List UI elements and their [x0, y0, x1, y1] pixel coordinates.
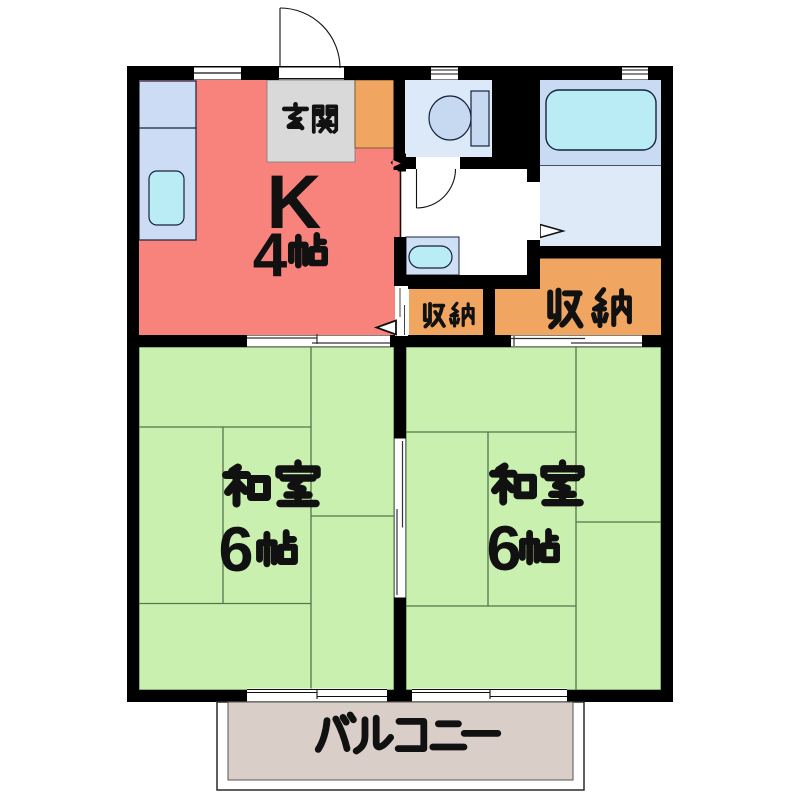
svg-text:4: 4 — [253, 221, 288, 290]
svg-text:6: 6 — [218, 515, 253, 585]
svg-text:6: 6 — [486, 514, 521, 584]
